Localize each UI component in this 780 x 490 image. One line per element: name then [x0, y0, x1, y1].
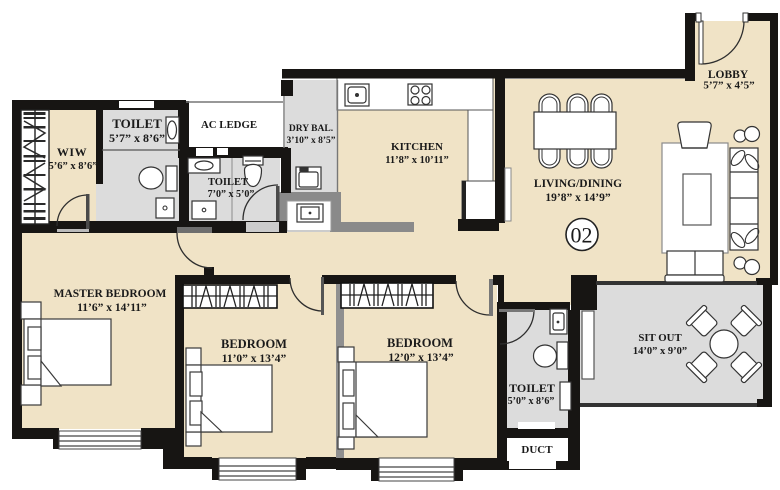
svg-text:DUCT: DUCT	[521, 444, 553, 456]
svg-text:3’10” x 8’5”: 3’10” x 8’5”	[286, 136, 335, 146]
svg-text:7’0” x 5’0”: 7’0” x 5’0”	[208, 189, 255, 200]
svg-text:5’6” x 8’6”: 5’6” x 8’6”	[49, 161, 98, 172]
svg-text:LIVING/DINING: LIVING/DINING	[534, 178, 622, 190]
svg-text:5’7” x 8’6”: 5’7” x 8’6”	[109, 131, 165, 145]
svg-text:TOILET: TOILET	[208, 177, 248, 188]
svg-text:5’0” x 8’6”: 5’0” x 8’6”	[508, 396, 555, 407]
svg-text:WIW: WIW	[57, 145, 87, 159]
svg-text:AC LEDGE: AC LEDGE	[201, 119, 257, 131]
svg-text:12’0” x 13’4”: 12’0” x 13’4”	[388, 352, 453, 364]
svg-text:11’6” x 14’11”: 11’6” x 14’11”	[77, 302, 147, 314]
svg-text:SIT OUT: SIT OUT	[638, 332, 682, 344]
svg-text:11’0” x 13’4”: 11’0” x 13’4”	[222, 353, 287, 365]
svg-text:14’0” x 9’0”: 14’0” x 9’0”	[633, 346, 687, 357]
svg-text:TOILET: TOILET	[112, 116, 162, 131]
svg-text:MASTER BEDROOM: MASTER BEDROOM	[54, 288, 167, 300]
svg-text:KITCHEN: KITCHEN	[391, 141, 443, 153]
svg-text:BEDROOM: BEDROOM	[387, 336, 453, 350]
svg-text:19’8” x 14’9”: 19’8” x 14’9”	[545, 192, 610, 204]
svg-text:TOILET: TOILET	[509, 381, 555, 395]
svg-text:5’7” x 4’5”: 5’7” x 4’5”	[703, 80, 754, 92]
svg-text:11’8” x 10’11”: 11’8” x 10’11”	[385, 155, 449, 166]
svg-text:02: 02	[571, 223, 593, 248]
svg-text:BEDROOM: BEDROOM	[221, 337, 287, 351]
svg-text:DRY BAL.: DRY BAL.	[289, 124, 333, 134]
